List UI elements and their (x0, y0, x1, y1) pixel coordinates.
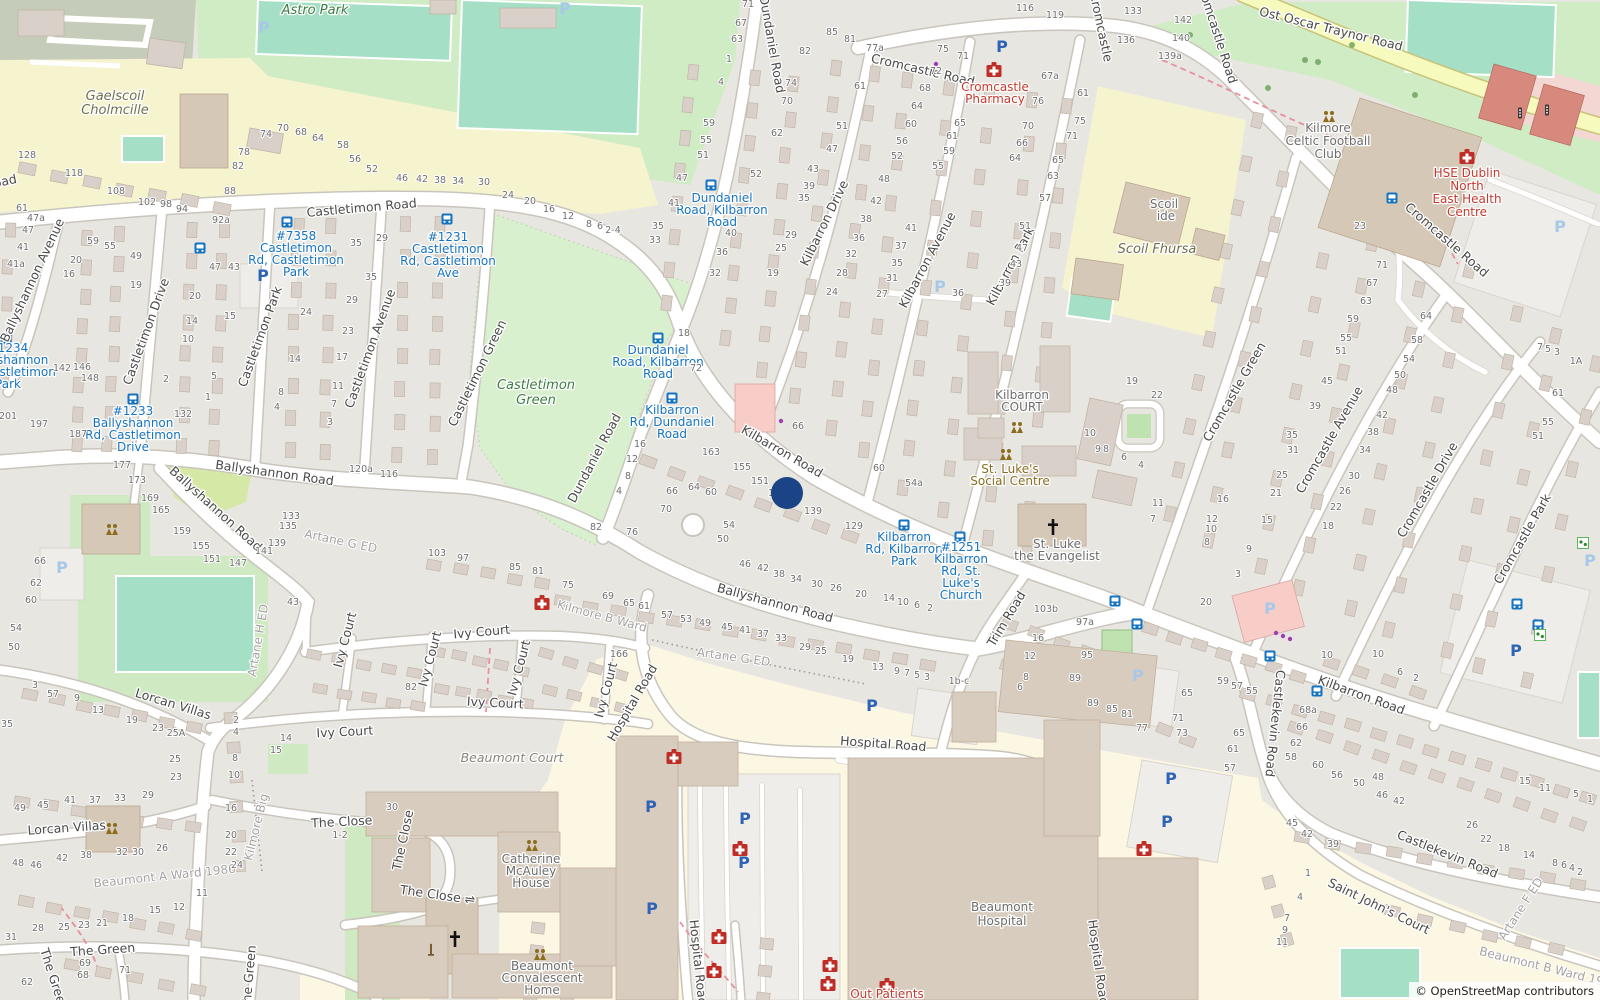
house-number: 82 (232, 161, 244, 172)
house-number: 4 (616, 486, 622, 497)
parking-faint-icon: P (1584, 551, 1596, 570)
building (1475, 758, 1492, 772)
house-number: 20 (1200, 597, 1212, 608)
parking-icon: P (739, 809, 751, 828)
house-number: 10 (1372, 649, 1384, 660)
building (285, 410, 296, 425)
building (507, 573, 523, 585)
building (616, 736, 678, 1000)
parking-faint-icon: P (258, 18, 270, 37)
house-number: 64 (312, 133, 324, 144)
building (186, 253, 197, 268)
building (1001, 355, 1012, 371)
house-number: 19 (126, 715, 138, 726)
house-number: 1 (1305, 868, 1311, 879)
building (156, 818, 172, 830)
label-red: HSE Dublin (1434, 166, 1501, 180)
bus-icon (899, 520, 910, 531)
building (682, 97, 694, 113)
house-number: 7 (904, 668, 910, 679)
parking-icon: P (645, 797, 657, 816)
house-number: 136 (1117, 35, 1135, 46)
house-number: 65 (954, 118, 966, 129)
building (957, 336, 969, 352)
house-number: 62 (1290, 738, 1302, 749)
building (1318, 711, 1335, 725)
house-number: 6 (597, 221, 603, 232)
building (978, 418, 1004, 438)
house-number: 25 (815, 646, 827, 657)
house-number: 5 (1545, 344, 1551, 355)
house-number: 71 (957, 51, 969, 62)
house-number: 18 (1322, 521, 1334, 532)
building (839, 302, 851, 318)
building (1004, 311, 1015, 327)
house-number: 151 (751, 476, 769, 487)
building (980, 128, 992, 144)
building (209, 440, 220, 455)
house-number: 135 (279, 521, 297, 532)
label-park: Astro Park (281, 3, 349, 18)
house-number: 76 (626, 527, 638, 538)
building (1372, 749, 1389, 763)
house-number: 159 (173, 526, 191, 537)
house-number: 40 (725, 228, 737, 239)
house-number: 54a (905, 478, 923, 489)
house-number: 39 (1309, 401, 1321, 412)
community-icon (1011, 422, 1023, 433)
house-number: 82 (799, 46, 811, 57)
house-number: 15 (149, 905, 161, 916)
building (1032, 412, 1043, 428)
house-number: 37 (757, 629, 769, 640)
building (1508, 868, 1524, 880)
house-number: 32 (116, 847, 128, 858)
house-number: 68 (919, 83, 931, 94)
house-number: 48 (12, 858, 24, 869)
house-number: 17 (336, 352, 348, 363)
label-bus: Park (0, 377, 21, 391)
house-number: 1-2 (332, 830, 348, 841)
house-number: 42 (56, 853, 68, 864)
house-number: 31 (1287, 445, 1299, 456)
building (1343, 741, 1360, 755)
svg-text:P: P (258, 18, 270, 37)
house-number: 26 (1466, 820, 1478, 831)
parking-lane-4 (800, 790, 801, 1000)
building (1052, 188, 1063, 204)
bus-icon (195, 243, 206, 254)
building (361, 692, 376, 703)
house-number: 2 (1413, 673, 1419, 684)
label-red: Out Patients (850, 987, 924, 1000)
house-number: 132 (174, 409, 192, 420)
house-number: 66 (1016, 138, 1028, 149)
label-park: Castletimon (497, 378, 575, 393)
house-number: 68 (77, 970, 89, 981)
building (500, 8, 556, 28)
house-number: 56 (896, 136, 908, 147)
house-number: 55 (104, 241, 116, 252)
house-number: 55 (1246, 686, 1258, 697)
house-number: 75 (562, 580, 574, 591)
house-number: 14 (280, 733, 292, 744)
house-number: 16 (543, 204, 555, 215)
house-number: 142 (53, 363, 71, 374)
bus-icon (1265, 651, 1276, 662)
svg-text:P: P (645, 797, 657, 816)
house-number: 118 (65, 168, 83, 179)
house-number: 3 (924, 672, 930, 683)
house-number: 74 (785, 78, 797, 89)
building (817, 169, 829, 185)
house-number: 42 (870, 196, 882, 207)
svg-text:P: P (866, 696, 878, 715)
house-number: 49 (699, 618, 711, 629)
building (180, 377, 191, 392)
building (720, 330, 732, 346)
house-number: 6 (1017, 682, 1023, 693)
house-number: 155 (733, 462, 751, 473)
house-number: 38 (860, 214, 872, 225)
building (1484, 789, 1501, 803)
house-number: 30 (132, 847, 144, 858)
building (80, 289, 91, 305)
building (566, 689, 582, 701)
house-number: 58 (1411, 335, 1423, 346)
house-number: 20 (855, 589, 867, 600)
parking-icon: P (1161, 812, 1173, 831)
house-number: 46 (396, 173, 408, 184)
building (1289, 383, 1302, 400)
traffic-icon (1518, 108, 1522, 119)
house-number: 70 (1022, 121, 1034, 132)
house-number: 10 (1321, 650, 1333, 661)
building (835, 341, 847, 357)
building (1308, 296, 1321, 313)
building (1443, 352, 1456, 369)
label-adm: Beaumont A Ward 1986 (93, 862, 237, 891)
building (114, 226, 125, 242)
building (1423, 442, 1436, 459)
building (394, 414, 405, 429)
parking-lot (1440, 560, 1590, 703)
building (1589, 356, 1600, 373)
house-number: 1 (205, 392, 211, 403)
playground-icon (1578, 538, 1589, 549)
house-number: 42 (1376, 410, 1388, 421)
building (430, 383, 440, 398)
building (430, 349, 440, 364)
house-number: 51 (1532, 431, 1544, 442)
house-number: 46 (1376, 790, 1388, 801)
house-number: 74 (260, 129, 272, 140)
tree-icon (1265, 85, 1271, 91)
house-number: 49 (14, 803, 26, 814)
parking-icon: P (257, 266, 269, 285)
building (862, 105, 874, 121)
house-number: 70 (781, 96, 793, 107)
house-number: 77 (1136, 723, 1148, 734)
location-marker[interactable] (771, 477, 803, 509)
label-st: The Green (69, 940, 136, 960)
house-number: 54 (723, 520, 735, 531)
building (381, 663, 396, 675)
house-number: 25A (167, 728, 186, 739)
house-number: 71 (1066, 131, 1078, 142)
building (725, 298, 737, 314)
house-number: 21 (96, 918, 108, 929)
building (320, 380, 331, 395)
building (836, 642, 852, 654)
building (71, 805, 87, 817)
building (72, 407, 83, 423)
house-number: 35 (652, 221, 664, 232)
house-number: 70 (660, 504, 672, 515)
label-st: Kilbarron Road (739, 422, 826, 481)
building (430, 416, 440, 431)
house-number: 27 (876, 289, 888, 300)
house-number: 147 (229, 558, 247, 569)
house-number: 6 (1121, 452, 1127, 463)
building (1459, 545, 1472, 562)
house-number: 45 (721, 622, 733, 633)
building (1549, 327, 1562, 344)
house-number: 77a (866, 43, 884, 54)
house-number: 19 (1126, 376, 1138, 387)
house-number: 56 (349, 154, 361, 165)
house-number: 102 (138, 197, 156, 208)
house-number: 29 (376, 233, 388, 244)
label-gry: Celtic Football (1285, 134, 1370, 148)
house-number: 41a (7, 259, 25, 270)
building (313, 683, 328, 694)
house-number: 66 (666, 486, 678, 497)
house-number: 59 (703, 118, 715, 129)
house-number: 59 (87, 236, 99, 247)
label-gry: House (512, 876, 550, 890)
house-number: 33 (775, 633, 787, 644)
house-number: 60 (705, 487, 717, 498)
house-number: 45 (1321, 376, 1333, 387)
house-number: 165 (152, 505, 170, 516)
house-number: 22 (1151, 390, 1163, 401)
building (760, 938, 774, 950)
tree-icon (1412, 92, 1418, 98)
house-number: 7 (1537, 342, 1543, 353)
house-number: 55 (932, 161, 944, 172)
label-gry: Club (1315, 147, 1342, 161)
house-number: 1b-c (949, 676, 970, 687)
house-number: 46 (30, 860, 42, 871)
house-number: 76 (1032, 96, 1044, 107)
building (1541, 808, 1558, 822)
building (970, 211, 982, 227)
building (938, 502, 950, 518)
building (320, 444, 331, 459)
svg-text:P: P (56, 558, 68, 577)
house-number: 5 (1573, 789, 1579, 800)
building (892, 652, 908, 664)
house-number: 9 (74, 693, 80, 704)
building (326, 283, 337, 298)
house-number: 64 (1009, 153, 1021, 164)
house-number: 32 (709, 268, 721, 279)
building (77, 318, 88, 334)
building (323, 315, 334, 330)
label-st: Ivy Court (466, 694, 524, 712)
building (1382, 621, 1395, 638)
house-number: 15 (1519, 776, 1531, 787)
building (81, 260, 92, 276)
house-number: 23 (1354, 221, 1366, 232)
house-number: 3 (1554, 347, 1560, 358)
sports-pitch (1340, 948, 1420, 998)
building (783, 507, 801, 522)
house-number: 173 (128, 475, 146, 486)
house-number: 45 (37, 800, 49, 811)
sports-pitch (1578, 672, 1600, 738)
building (95, 966, 112, 979)
building (18, 10, 64, 36)
house-number: 13 (92, 705, 104, 716)
house-number: 8 (278, 387, 284, 398)
label-bus: Road (707, 215, 737, 229)
building (480, 567, 496, 579)
building (1040, 346, 1070, 412)
house-number: 22 (225, 847, 237, 858)
house-number: 16 (1217, 494, 1229, 505)
building (400, 216, 411, 231)
house-number: 8 (625, 471, 631, 482)
house-number: 54 (1403, 354, 1415, 365)
house-number: 3 (1235, 569, 1241, 580)
building (1061, 98, 1072, 114)
house-number: 26 (1339, 486, 1351, 497)
building (754, 497, 772, 512)
building (862, 401, 874, 417)
house-number: 34 (1359, 445, 1371, 456)
house-number: 55 (700, 135, 712, 146)
map-attribution[interactable]: © OpenStreetMap contributors (1409, 982, 1600, 1000)
house-number: 64 (911, 101, 923, 112)
building (1071, 258, 1124, 300)
building (726, 485, 744, 500)
building (858, 442, 870, 458)
label-gry: Hospital (978, 914, 1027, 928)
house-number: 163 (702, 447, 720, 458)
dot-icon (1281, 634, 1285, 638)
house-number: 68 (295, 127, 307, 138)
house-number: 187 (69, 429, 87, 440)
house-number: 61 (638, 601, 650, 612)
label-park: Green (516, 393, 556, 408)
parking-faint-icon: P (1264, 599, 1276, 618)
label-bus: Park (283, 265, 309, 279)
house-number: 11 (1276, 937, 1288, 948)
building (1374, 463, 1387, 480)
building (534, 577, 550, 589)
building (756, 362, 768, 378)
building (1192, 374, 1205, 391)
house-number: 50 (717, 534, 729, 545)
building (1345, 600, 1358, 617)
building (920, 659, 936, 671)
house-number: 59 (1347, 314, 1359, 325)
house-number: 28 (836, 268, 848, 279)
label-bus: Park (891, 554, 917, 568)
building (1457, 777, 1474, 791)
hospital-icon (535, 595, 550, 610)
map-canvas[interactable]: PPPPPPPPPPPPPPPPPP Castletimon RoadRoadC… (0, 0, 1600, 1000)
house-number: 24 (300, 307, 312, 318)
house-number: 75 (1074, 116, 1086, 127)
building (830, 60, 842, 76)
building (562, 656, 578, 669)
house-number: 67a (1041, 71, 1059, 82)
bus-icon (653, 333, 664, 344)
house-number: 20 (70, 255, 82, 266)
house-number: 201 (0, 411, 17, 422)
parking-faint-icon: P (1132, 666, 1144, 685)
house-number: 29 (799, 642, 811, 653)
building (158, 979, 175, 992)
house-number: 59 (943, 146, 955, 157)
building (639, 454, 657, 469)
building (930, 200, 942, 216)
house-number: 151 (203, 554, 221, 565)
house-number: 25 (775, 243, 787, 254)
house-number: 133 (1124, 6, 1142, 17)
building (1300, 340, 1313, 357)
building (410, 700, 425, 711)
house-number: 18 (1498, 843, 1510, 854)
house-number: 9 (1246, 544, 1252, 555)
svg-text:P: P (1554, 217, 1566, 236)
house-number: 67 (735, 18, 747, 29)
house-number: 11 (1539, 783, 1551, 794)
house-number: 29 (785, 230, 797, 241)
house-number: 88 (224, 186, 236, 197)
house-number: 92a (212, 215, 230, 226)
house-number: 52 (366, 164, 378, 175)
house-number: 2 (233, 715, 239, 726)
house-number: 6 (1397, 667, 1403, 678)
building (1431, 396, 1444, 413)
house-number: 66 (1296, 722, 1308, 733)
house-number: 64 (688, 482, 700, 493)
building (432, 316, 442, 331)
parking-icon: P (1165, 769, 1177, 788)
house-number: 119 (1046, 10, 1064, 21)
house-number: 52 (750, 169, 762, 180)
building (872, 319, 884, 335)
house-number: 56 (1331, 770, 1343, 781)
house-number: 12 (562, 211, 574, 222)
house-number: 41 (905, 223, 917, 234)
house-number: 146 (73, 362, 91, 373)
house-number: 10 (897, 597, 909, 608)
building (110, 286, 121, 302)
building (538, 647, 554, 660)
house-number: 16 (63, 269, 75, 280)
building (776, 183, 788, 199)
house-number: 139a (1158, 51, 1182, 62)
house-number: 18 (122, 913, 134, 924)
building (104, 705, 121, 718)
house-number: 95 (1081, 650, 1093, 661)
house-number: 3 (32, 680, 38, 691)
